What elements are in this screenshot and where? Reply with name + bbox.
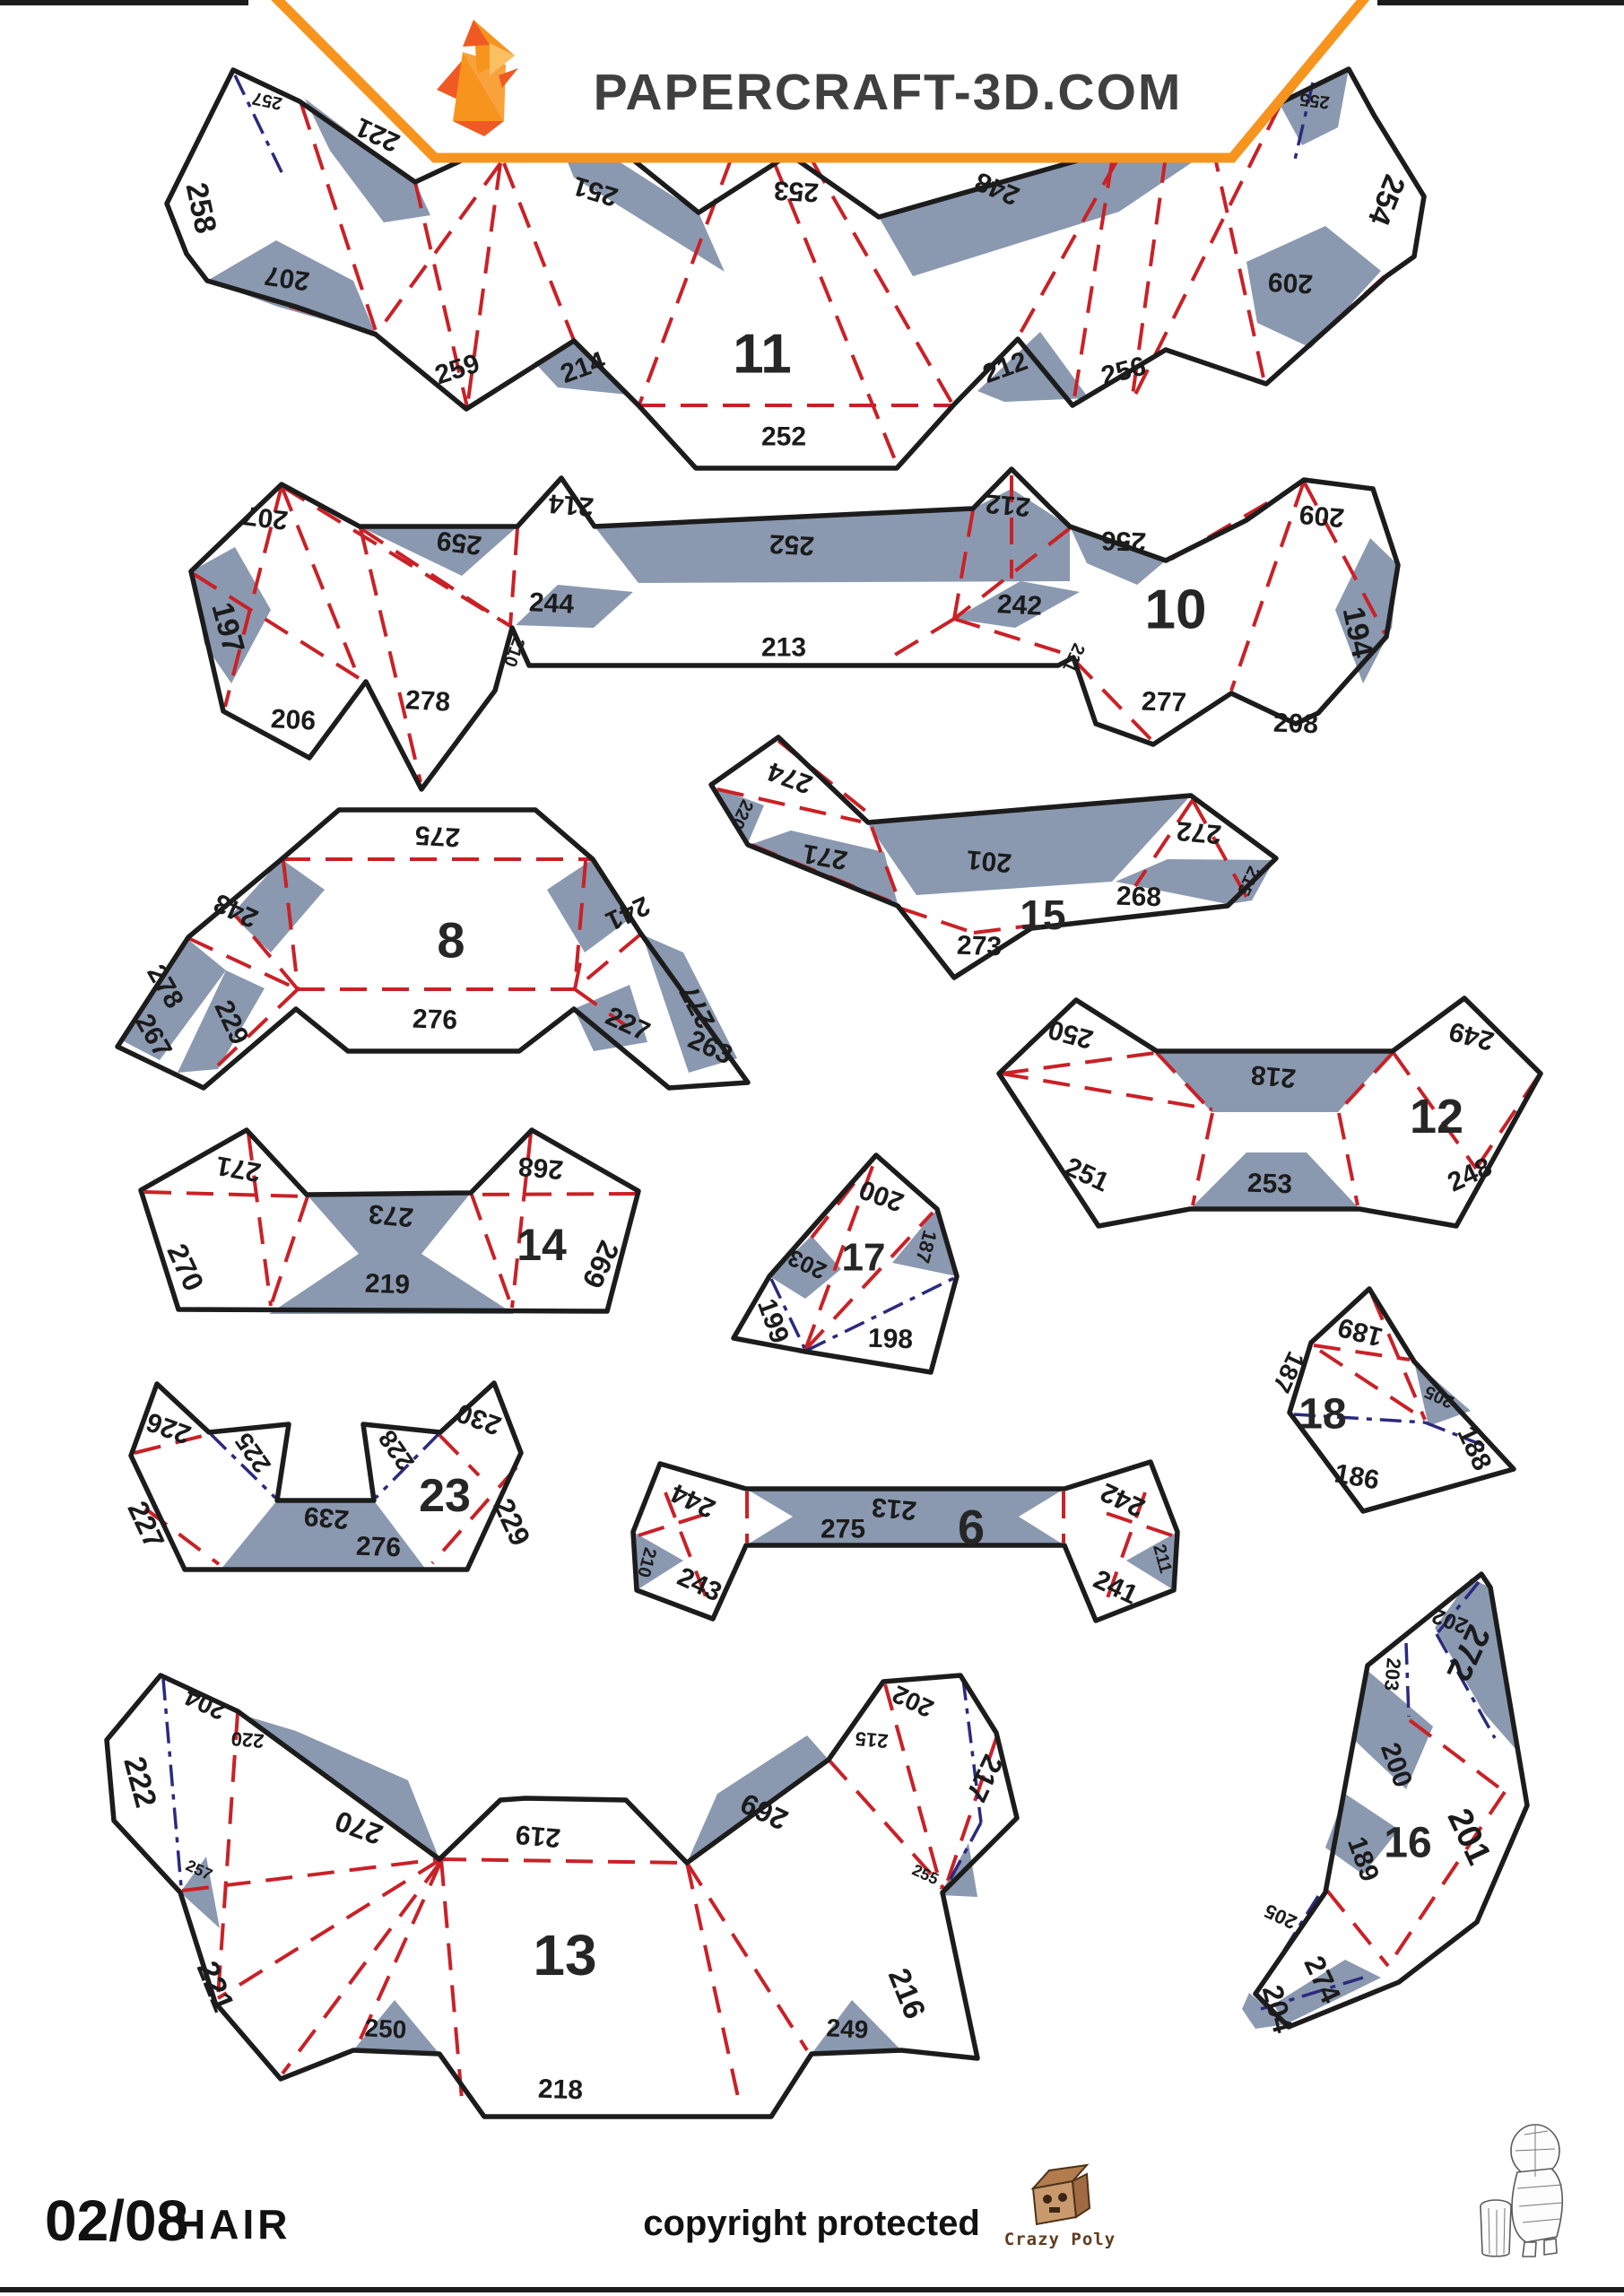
edge-label: 268 xyxy=(517,1151,565,1184)
edge-label: 252 xyxy=(769,528,815,561)
edge-label: 276 xyxy=(355,1532,401,1563)
edge-label: 207 xyxy=(263,260,311,296)
edge-label: 205 xyxy=(1261,1900,1300,1934)
edge-label: 273 xyxy=(368,1198,415,1231)
edge-label: 218 xyxy=(1250,1059,1298,1092)
edge-label: 250 xyxy=(364,2013,407,2043)
piece-number: 17 xyxy=(842,1236,886,1280)
edge-label: 215 xyxy=(855,1727,890,1752)
header-banner: PAPERCRAFT-3D.COM xyxy=(267,0,1372,158)
piece-number: 8 xyxy=(437,912,465,969)
brand-logo-icon xyxy=(1033,2165,1090,2224)
copyright-text: copyright protected xyxy=(643,2204,980,2243)
edge-label: 275 xyxy=(821,1515,865,1544)
piece-23: 22622523022723927622922823 xyxy=(121,1383,536,1570)
piece-number: 23 xyxy=(419,1470,471,1522)
edge-label: 275 xyxy=(414,820,461,852)
edge-label: 203 xyxy=(1380,1657,1405,1692)
edge-label: 207 xyxy=(241,500,290,535)
footer: 02/08 HAIR copyright protected Crazy Pol… xyxy=(45,2125,1562,2257)
edge-label: 253 xyxy=(773,175,820,207)
piece-8: 2752432412782672292762272772638 xyxy=(117,810,748,1088)
edge-label: 242 xyxy=(996,589,1043,622)
piece-number: 16 xyxy=(1384,1820,1431,1867)
piece-10: 2072592142522122562091972442421942102112… xyxy=(191,469,1398,789)
edge-label: 272 xyxy=(1176,815,1223,848)
edge-label: 273 xyxy=(956,931,1002,962)
edge-label: 253 xyxy=(1246,1169,1292,1200)
piece-15: 27422027120127326827221515 xyxy=(711,737,1276,978)
piece-number: 15 xyxy=(1020,891,1065,938)
piece-12: 25021824925125324812 xyxy=(999,998,1541,1226)
edge-label: 255 xyxy=(1298,89,1331,112)
edge-label: 268 xyxy=(1116,882,1161,913)
edge-label: 208 xyxy=(1272,709,1318,740)
mascot-figure-icon xyxy=(1481,2125,1562,2257)
piece-number: 9 xyxy=(958,1500,985,1553)
edge-label: 209 xyxy=(1298,499,1346,532)
edge-label: 276 xyxy=(412,1004,457,1036)
piece-17: 20020318719919817 xyxy=(734,1155,957,1372)
edge-label: 214 xyxy=(547,488,595,521)
piece-number: 18 xyxy=(1298,1391,1346,1439)
edge-label: 209 xyxy=(1267,266,1314,299)
edge-label: 219 xyxy=(515,1819,562,1852)
edge-label: 212 xyxy=(985,488,1032,521)
edge-label: 244 xyxy=(528,587,575,620)
brand-name: Crazy Poly xyxy=(1004,2230,1116,2249)
edge-label: 220 xyxy=(230,1727,265,1752)
pattern-sheet: 2572212512532482552542582072092592142122… xyxy=(0,0,1624,2296)
edge-label: 219 xyxy=(364,1269,410,1300)
edge-label: 256 xyxy=(1100,526,1146,557)
edge-label: 218 xyxy=(537,2074,583,2106)
piece-18: 18918720518618818 xyxy=(1267,1289,1514,1511)
edge-label: 239 xyxy=(303,1500,351,1534)
piece-number: 11 xyxy=(733,324,792,386)
edge-label: 213 xyxy=(871,1492,918,1525)
piece-14: 27127326827021926914 xyxy=(141,1130,638,1314)
piece-9: 2442132752422102432412119 xyxy=(633,1462,1177,1621)
edge-label: 201 xyxy=(966,844,1013,877)
piece-13: 2042202222702572192022152172692552212162… xyxy=(107,1675,1017,2117)
page-number: 02/08 xyxy=(45,2188,188,2253)
edge-label: 213 xyxy=(761,633,806,663)
piece-number: 10 xyxy=(1145,579,1207,641)
piece-number: 12 xyxy=(1410,1090,1463,1144)
pieces-layer: 2572212512532482552542582072092592142122… xyxy=(107,69,1541,2117)
edge-label: 277 xyxy=(1141,687,1186,718)
piece-number: 14 xyxy=(517,1220,567,1270)
page-title: HAIR xyxy=(176,2201,291,2248)
piece-number: 13 xyxy=(533,1923,596,1987)
papercraft-pattern-page: 2572212512532482552542582072092592142122… xyxy=(0,0,1624,2296)
site-title: PAPERCRAFT-3D.COM xyxy=(594,64,1183,121)
edge-label: 252 xyxy=(761,422,806,452)
edge-label: 206 xyxy=(270,704,317,736)
edge-label: 198 xyxy=(867,1324,913,1355)
piece-16: 20227220320018920120527420416 xyxy=(1242,1574,1527,2037)
edge-label: 249 xyxy=(826,2013,869,2043)
edge-label: 259 xyxy=(435,526,483,561)
edge-label: 278 xyxy=(404,685,451,717)
